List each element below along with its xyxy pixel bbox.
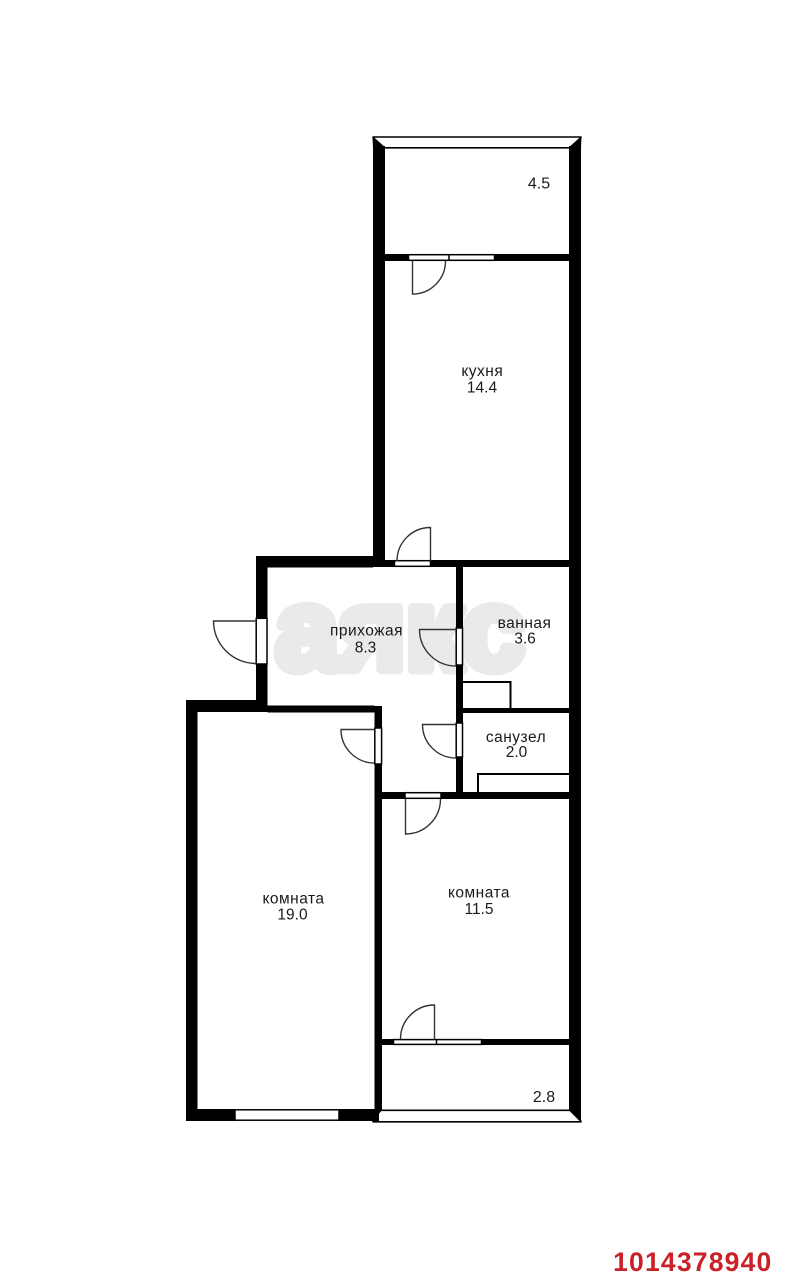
svg-text:3.6: 3.6 [514,631,536,648]
svg-text:8.3: 8.3 [355,640,377,657]
svg-text:14.4: 14.4 [467,380,498,397]
svg-text:2.0: 2.0 [506,744,528,761]
svg-text:19.0: 19.0 [277,907,308,924]
svg-text:4.5: 4.5 [528,176,550,193]
svg-text:ванная: ванная [498,615,552,632]
svg-text:комната: комната [262,891,324,908]
svg-text:прихожая: прихожая [330,623,403,640]
svg-text:кухня: кухня [461,363,503,380]
svg-text:1014378940: 1014378940 [613,1247,772,1277]
svg-text:комната: комната [448,885,510,902]
svg-text:11.5: 11.5 [464,901,493,918]
svg-text:2.8: 2.8 [533,1089,555,1106]
